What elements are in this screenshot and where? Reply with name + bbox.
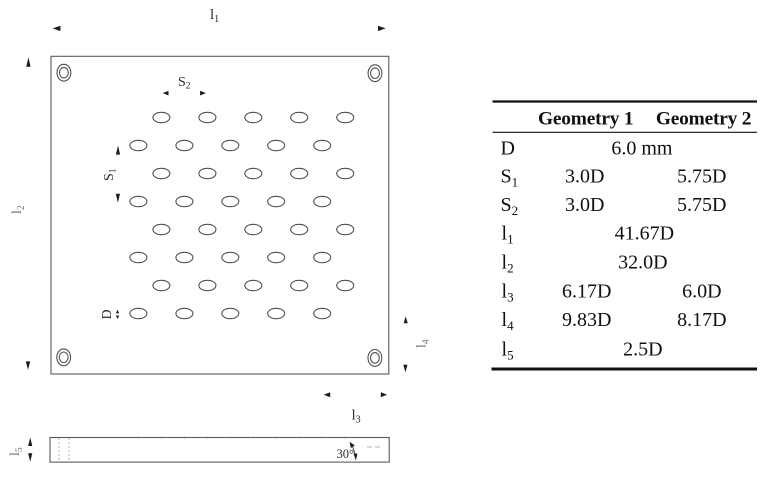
svg-text:D: D	[501, 138, 515, 160]
svg-text:l1: l1	[210, 7, 219, 25]
svg-text:l5: l5	[502, 338, 514, 362]
svg-text:9.83D: 9.83D	[562, 309, 611, 331]
svg-text:l4: l4	[415, 339, 432, 348]
svg-text:Geometry 1: Geometry 1	[538, 109, 633, 130]
svg-text:5.75D: 5.75D	[677, 194, 726, 216]
svg-text:6.0D: 6.0D	[682, 280, 721, 302]
svg-text:l5: l5	[8, 447, 25, 456]
svg-text:l3: l3	[352, 408, 361, 426]
svg-text:l3: l3	[502, 280, 514, 304]
svg-text:30°: 30°	[337, 447, 355, 461]
svg-text:S1: S1	[501, 166, 519, 190]
svg-text:S2: S2	[501, 194, 519, 218]
svg-text:6.17D: 6.17D	[562, 280, 611, 302]
svg-text:6.0 mm: 6.0 mm	[611, 138, 673, 160]
svg-text:2.5D: 2.5D	[623, 338, 662, 360]
svg-text:3.0D: 3.0D	[565, 166, 604, 188]
svg-text:8.17D: 8.17D	[677, 309, 726, 331]
svg-text:5.75D: 5.75D	[677, 166, 726, 188]
svg-text:l2: l2	[10, 205, 27, 214]
svg-text:41.67D: 41.67D	[615, 222, 674, 244]
svg-text:3.0D: 3.0D	[565, 194, 604, 216]
svg-text:l2: l2	[502, 252, 514, 276]
svg-text:32.0D: 32.0D	[618, 252, 667, 274]
svg-text:S1: S1	[102, 168, 119, 181]
svg-text:S2: S2	[178, 75, 191, 92]
svg-text:Geometry 2: Geometry 2	[656, 109, 751, 130]
svg-text:D: D	[100, 309, 115, 319]
svg-text:l4: l4	[502, 309, 515, 333]
svg-text:l1: l1	[502, 222, 514, 246]
